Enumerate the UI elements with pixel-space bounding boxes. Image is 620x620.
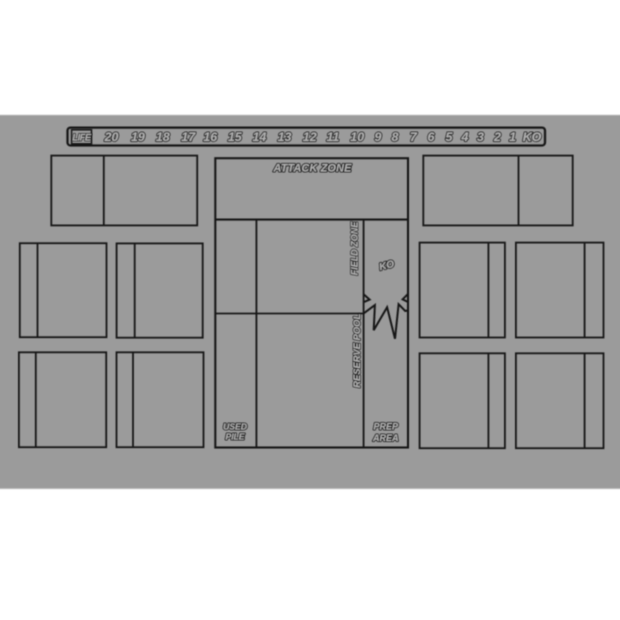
svg-text:13: 13 bbox=[278, 130, 292, 144]
svg-text:USED: USED bbox=[223, 421, 248, 431]
svg-text:10: 10 bbox=[350, 130, 364, 144]
svg-text:18: 18 bbox=[156, 130, 170, 144]
svg-text:12: 12 bbox=[303, 130, 317, 144]
svg-text:19: 19 bbox=[131, 130, 145, 144]
svg-text:ATTACK ZONE: ATTACK ZONE bbox=[273, 163, 353, 175]
svg-text:9: 9 bbox=[375, 130, 382, 144]
svg-text:17: 17 bbox=[181, 130, 196, 144]
svg-text:FIELD ZONE: FIELD ZONE bbox=[349, 221, 359, 275]
svg-text:LIFE: LIFE bbox=[72, 132, 91, 142]
svg-text:PILE: PILE bbox=[226, 432, 246, 442]
svg-text:6: 6 bbox=[428, 130, 435, 144]
svg-text:4: 4 bbox=[461, 130, 469, 144]
svg-text:8: 8 bbox=[392, 130, 399, 144]
svg-text:2: 2 bbox=[493, 130, 501, 144]
svg-text:14: 14 bbox=[253, 130, 267, 144]
svg-text:RESERVE POOL: RESERVE POOL bbox=[351, 314, 362, 388]
svg-text:16: 16 bbox=[203, 130, 217, 144]
svg-text:15: 15 bbox=[228, 130, 243, 144]
svg-text:20: 20 bbox=[104, 130, 119, 144]
svg-text:7: 7 bbox=[410, 130, 418, 144]
svg-text:AREA: AREA bbox=[372, 433, 399, 443]
svg-text:PREP: PREP bbox=[374, 422, 400, 432]
svg-text:KO: KO bbox=[523, 130, 542, 144]
svg-text:11: 11 bbox=[326, 130, 339, 144]
svg-text:1: 1 bbox=[509, 130, 516, 144]
svg-text:3: 3 bbox=[477, 130, 484, 144]
svg-text:5: 5 bbox=[446, 130, 454, 144]
